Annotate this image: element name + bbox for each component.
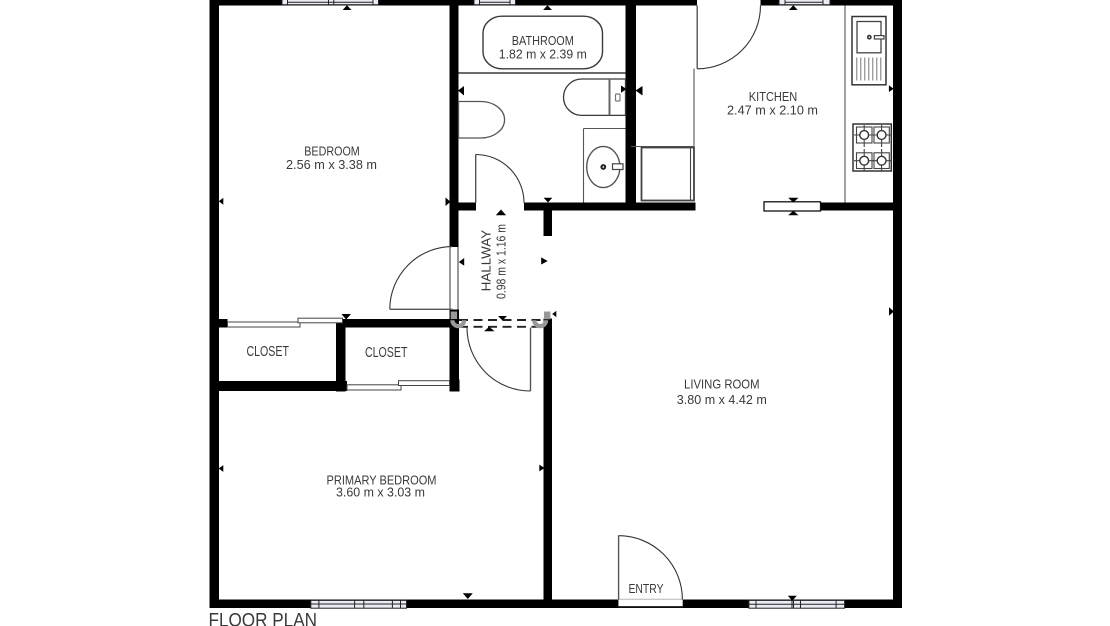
- svg-text:CLOSET: CLOSET: [246, 343, 289, 360]
- svg-text:2.56 m x 3.38 m: 2.56 m x 3.38 m: [286, 157, 377, 172]
- svg-text:LIVING ROOM: LIVING ROOM: [684, 377, 760, 392]
- svg-text:1.82 m x 2.39 m: 1.82 m x 2.39 m: [499, 47, 587, 62]
- svg-text:2.47 m x 2.10 m: 2.47 m x 2.10 m: [727, 103, 818, 118]
- svg-text:CLOSET: CLOSET: [365, 344, 408, 361]
- svg-text:3.60 m x 3.03 m: 3.60 m x 3.03 m: [336, 485, 425, 500]
- svg-text:HALLWAY: HALLWAY: [479, 230, 494, 292]
- svg-text:3.80 m x 4.42 m: 3.80 m x 4.42 m: [677, 392, 767, 407]
- svg-text:FLOOR PLAN: FLOOR PLAN: [209, 610, 318, 626]
- svg-text:ENTRY: ENTRY: [629, 581, 664, 596]
- svg-text:0.98 m x 1.16 m: 0.98 m x 1.16 m: [494, 224, 509, 299]
